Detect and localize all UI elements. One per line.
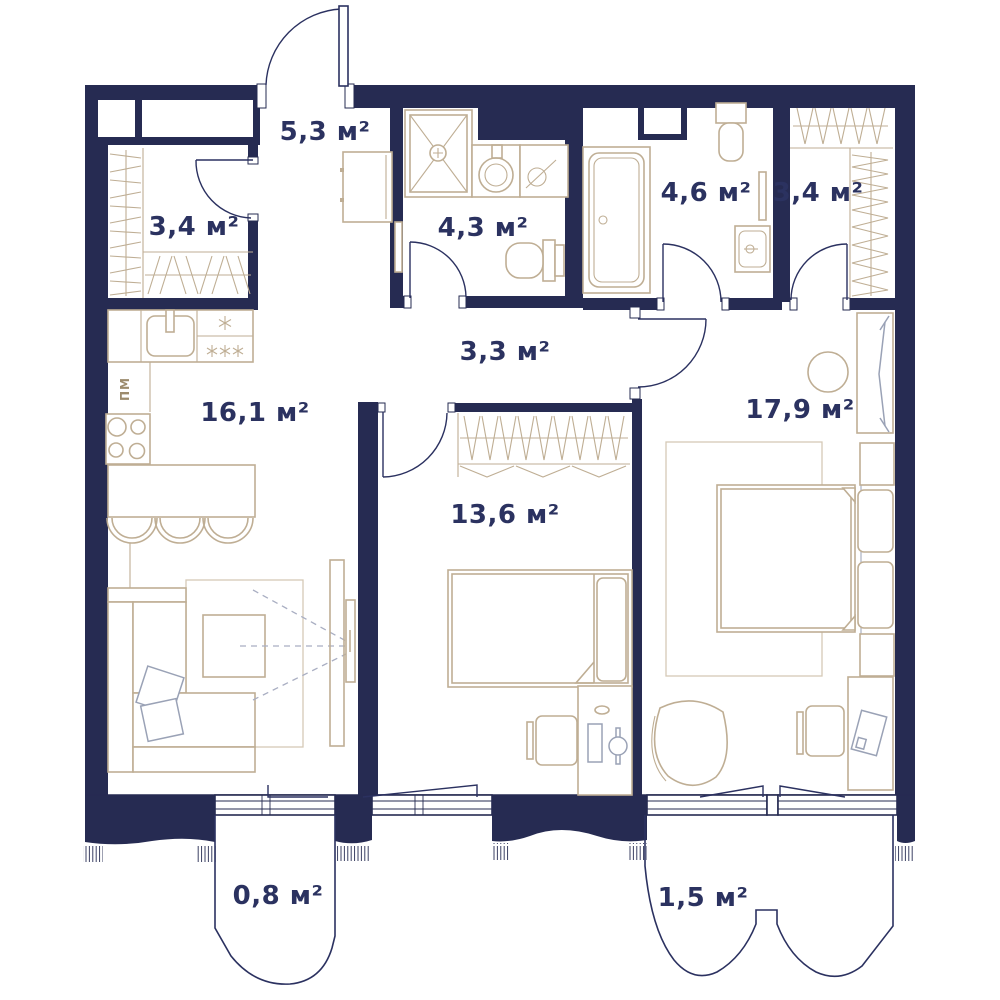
floor-drain-icon — [520, 145, 568, 197]
foundation-hatch — [83, 843, 915, 862]
window-mullion — [767, 795, 778, 815]
towel-rail-icon — [759, 172, 766, 220]
pillow — [858, 562, 893, 628]
floor-plan: ПМ — [0, 0, 1000, 1000]
dishwasher-label: ПМ — [118, 377, 132, 401]
toilet-icon — [506, 240, 564, 281]
dressing-table — [857, 313, 893, 433]
stove-icon — [106, 414, 150, 464]
label-kitchen-living: 16,1 м² — [200, 398, 309, 428]
kitchen-island — [108, 465, 255, 517]
shower-icon — [405, 110, 472, 197]
kitchen: ПМ — [106, 310, 255, 588]
armchair — [652, 701, 727, 785]
label-balcony-large: 1,5 м² — [658, 883, 749, 913]
wardrobe-left-door — [196, 160, 253, 218]
window-master-left — [647, 786, 767, 815]
label-entry-hall: 5,3 м² — [280, 117, 371, 147]
pouf — [808, 352, 848, 392]
tv-icon — [346, 600, 355, 682]
toilet-icon — [716, 103, 746, 161]
freezer-stars-icon — [207, 345, 243, 357]
hall-console — [340, 152, 392, 222]
washing-machine-icon — [472, 145, 520, 197]
bathroom-tub-door — [663, 244, 721, 302]
towel-rail-icon — [395, 222, 402, 272]
label-wardrobe-left: 3,4 м² — [149, 212, 240, 242]
wardrobe-right-door — [791, 244, 847, 300]
label-bedroom: 13,6 м² — [450, 500, 559, 530]
label-wardrobe-right: 3,4 м² — [773, 178, 864, 208]
bathtub-icon — [583, 147, 650, 293]
window-living — [215, 795, 335, 815]
entrance-door — [266, 6, 348, 86]
bar-stools — [107, 518, 253, 588]
bedroom-furniture — [448, 413, 632, 795]
nightstand — [860, 443, 894, 485]
pillow — [858, 490, 893, 552]
dishwasher-cabinet: ПМ — [118, 362, 150, 412]
double-bed — [717, 485, 893, 632]
nightstand — [860, 634, 894, 676]
bathroom-shower-door — [410, 242, 466, 298]
window-bedroom — [363, 785, 492, 815]
kitchen-counter — [108, 310, 253, 362]
label-balcony-small: 0,8 м² — [233, 881, 324, 911]
desk-chair — [527, 716, 577, 765]
bedroom-master-door — [638, 319, 706, 387]
living-area — [108, 560, 355, 772]
wardrobe-shelf — [458, 413, 630, 477]
label-corridor: 3,3 м² — [460, 337, 551, 367]
desk — [578, 686, 632, 795]
floor-plan-page: ПМ — [0, 0, 1000, 1000]
label-bathroom-tub: 4,6 м² — [661, 178, 752, 208]
single-bed — [448, 570, 632, 687]
sink-icon — [735, 226, 770, 272]
label-bedroom-master: 17,9 м² — [745, 395, 854, 425]
desk — [848, 677, 893, 790]
desk-chair — [797, 706, 844, 756]
bedroom-door — [383, 412, 447, 477]
tv-console — [330, 560, 344, 746]
master-bedroom-furniture — [652, 313, 894, 790]
label-bathroom-shower: 4,3 м² — [438, 213, 529, 243]
